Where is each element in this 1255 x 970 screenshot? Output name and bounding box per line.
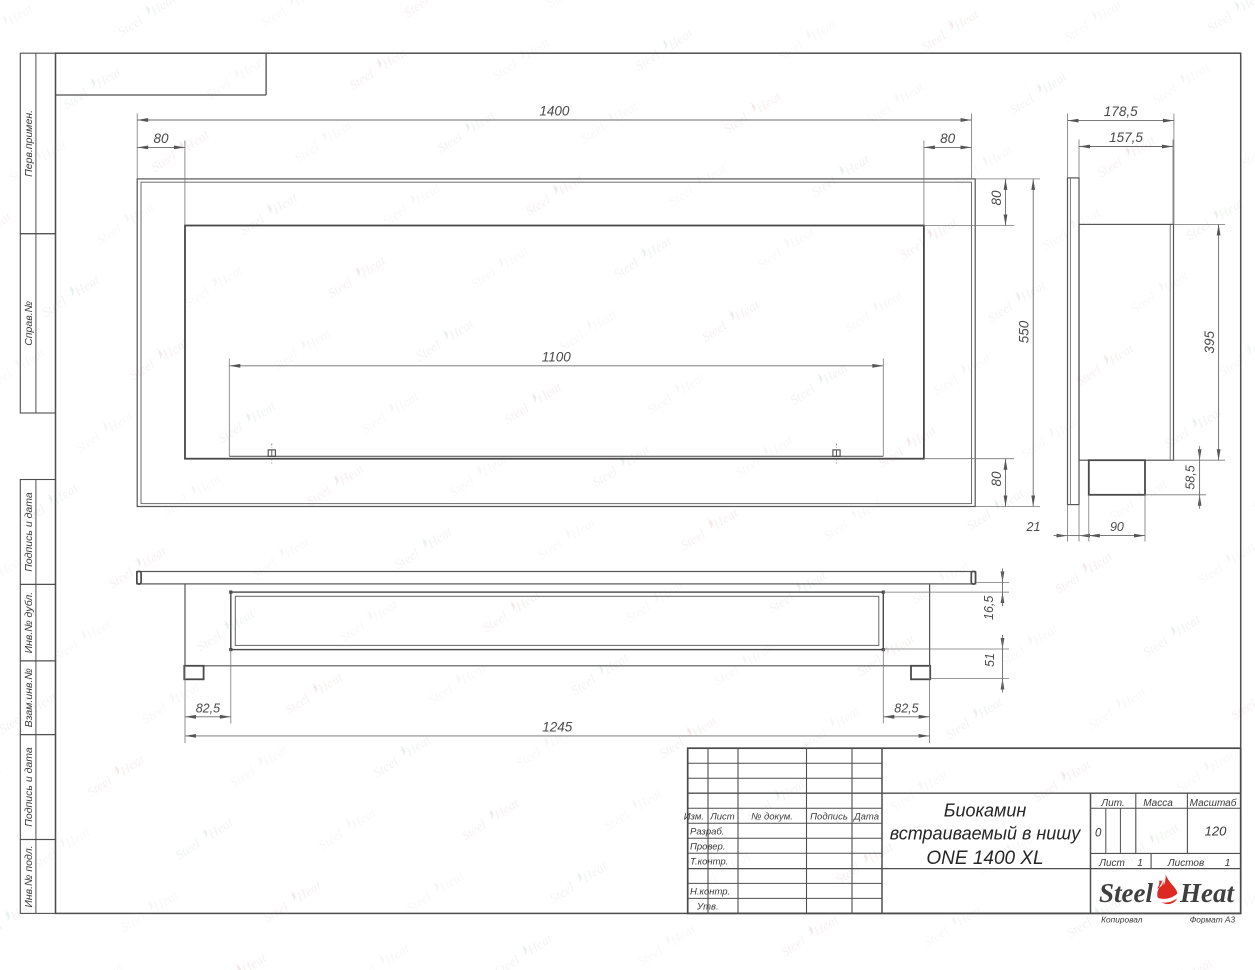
svg-text:395: 395 xyxy=(1202,331,1217,354)
svg-text:Heat: Heat xyxy=(810,911,842,939)
svg-text:Steel: Steel xyxy=(118,908,148,935)
svg-text:Heat: Heat xyxy=(776,775,808,803)
svg-text:Steel: Steel xyxy=(447,473,477,500)
svg-text:80: 80 xyxy=(989,190,1004,206)
svg-text:Heat: Heat xyxy=(1193,403,1225,431)
svg-text:Heat: Heat xyxy=(853,495,885,523)
svg-text:Heat: Heat xyxy=(290,0,322,9)
svg-text:Heat: Heat xyxy=(238,949,270,970)
svg-text:Подпись: Подпись xyxy=(810,812,848,823)
svg-text:51: 51 xyxy=(983,653,997,667)
svg-text:Heat: Heat xyxy=(874,286,906,314)
svg-text:Дата: Дата xyxy=(853,812,879,823)
svg-text:Steel: Steel xyxy=(635,942,665,969)
svg-text:Heat: Heat xyxy=(37,136,69,164)
svg-text:Heat: Heat xyxy=(390,388,422,416)
svg-text:Heat: Heat xyxy=(192,470,224,498)
svg-text:Heat: Heat xyxy=(621,441,653,469)
svg-text:Т.контр.: Т.контр. xyxy=(690,857,728,868)
svg-text:Steel: Steel xyxy=(346,66,376,93)
svg-text:Steel: Steel xyxy=(1174,768,1204,795)
svg-text:Heat: Heat xyxy=(490,795,522,823)
svg-text:Steel: Steel xyxy=(325,274,355,301)
svg-text:Steel: Steel xyxy=(1183,216,1213,243)
svg-text:Heat: Heat xyxy=(235,54,267,82)
svg-text:Steel: Steel xyxy=(888,788,918,815)
svg-text:Heat: Heat xyxy=(126,199,158,227)
svg-text:Steel: Steel xyxy=(227,763,257,790)
svg-text:Steel: Steel xyxy=(182,284,212,311)
svg-text:Steel: Steel xyxy=(1140,633,1170,660)
svg-text:Heat: Heat xyxy=(609,97,641,125)
svg-text:Steel: Steel xyxy=(1052,570,1082,597)
svg-text:0: 0 xyxy=(1095,828,1102,840)
svg-text:Heat: Heat xyxy=(984,141,1016,169)
svg-text:Heat: Heat xyxy=(1117,684,1149,712)
svg-text:178,5: 178,5 xyxy=(1104,104,1138,119)
svg-text:Steel: Steel xyxy=(985,299,1015,326)
svg-text:Heat: Heat xyxy=(1248,330,1255,358)
svg-text:Steel: Steel xyxy=(544,0,574,11)
svg-text:Steel: Steel xyxy=(632,47,662,74)
svg-text:Steel: Steel xyxy=(1204,8,1234,35)
svg-text:Heat: Heat xyxy=(1072,204,1104,232)
svg-text:Steel: Steel xyxy=(1216,352,1246,379)
svg-text:Heat: Heat xyxy=(150,886,182,914)
svg-text:157,5: 157,5 xyxy=(1109,130,1143,145)
svg-text:Steel: Steel xyxy=(1095,153,1125,180)
svg-text:Steel: Steel xyxy=(1195,560,1225,587)
svg-text:Heat: Heat xyxy=(159,334,191,362)
svg-text:Heat: Heat xyxy=(92,63,124,91)
svg-text:Heat: Heat xyxy=(974,693,1006,721)
svg-text:Steel: Steel xyxy=(349,962,379,970)
svg-text:Steel: Steel xyxy=(127,356,157,383)
svg-text:Heat: Heat xyxy=(49,480,81,508)
svg-text:Heat: Heat xyxy=(1038,69,1070,97)
svg-text:Heat: Heat xyxy=(1160,267,1192,295)
svg-text:Steel: Steel xyxy=(380,201,410,228)
svg-text:Steel: Steel xyxy=(459,816,489,843)
svg-text:Steel: Steel xyxy=(942,715,972,742)
svg-text:Steel: Steel xyxy=(404,889,434,916)
svg-text:Heat: Heat xyxy=(895,78,927,106)
svg-text:Steel: Steel xyxy=(84,773,114,800)
svg-text:Steel: Steel xyxy=(952,163,982,190)
svg-text:80: 80 xyxy=(154,131,170,146)
svg-text:Heat: Heat xyxy=(919,766,951,794)
svg-text:Steel: Steel xyxy=(918,27,948,54)
svg-text:Heat: Heat xyxy=(633,785,665,813)
svg-text:Heat: Heat xyxy=(214,262,246,290)
svg-text:Heat: Heat xyxy=(116,751,148,779)
svg-text:Heat: Heat xyxy=(138,543,170,571)
svg-text:Формат А3: Формат А3 xyxy=(1190,915,1236,925)
svg-text:Steel: Steel xyxy=(435,129,465,156)
svg-text:Heat: Heat xyxy=(357,252,389,280)
svg-text:Копировал: Копировал xyxy=(1101,915,1143,925)
svg-text:Heat: Heat xyxy=(667,921,699,949)
svg-text:Heat: Heat xyxy=(953,901,985,929)
svg-text:Steel: Steel xyxy=(611,255,641,282)
svg-text:Heat: Heat xyxy=(710,504,742,532)
svg-text:Steel: Steel xyxy=(1250,488,1255,515)
svg-text:Heat: Heat xyxy=(4,0,36,28)
svg-text:Steel: Steel xyxy=(997,642,1027,669)
svg-text:Steel: Steel xyxy=(1085,705,1115,732)
svg-text:Steel: Steel xyxy=(94,221,124,248)
svg-text:Heat: Heat xyxy=(786,223,818,251)
svg-text:Heat: Heat xyxy=(259,741,291,769)
svg-text:Heat: Heat xyxy=(478,451,510,479)
svg-text:Heat: Heat xyxy=(445,315,477,343)
svg-text:Steel: Steel xyxy=(413,337,443,364)
svg-text:Heat: Heat xyxy=(698,160,730,188)
svg-text:Steel: Steel xyxy=(1031,778,1061,805)
svg-text:Heat: Heat xyxy=(962,349,994,377)
svg-text:Steel: Steel xyxy=(1019,434,1049,461)
svg-text:16,5: 16,5 xyxy=(982,596,996,620)
svg-text:Steel: Steel xyxy=(513,744,543,771)
svg-text:Steel: Steel xyxy=(1061,18,1091,45)
svg-text:Steel: Steel xyxy=(282,690,312,717)
svg-text:Heat: Heat xyxy=(381,940,413,968)
svg-text:Heat: Heat xyxy=(512,586,544,614)
svg-text:1245: 1245 xyxy=(542,719,573,734)
svg-text:Лист: Лист xyxy=(1098,858,1125,869)
svg-text:Steel: Steel xyxy=(876,444,906,471)
svg-text:Heat: Heat xyxy=(1184,955,1216,970)
svg-text:Steel: Steel xyxy=(304,482,334,509)
svg-text:1: 1 xyxy=(1137,857,1143,869)
svg-text:Heat: Heat xyxy=(886,630,918,658)
svg-text:Heat: Heat xyxy=(1093,0,1125,24)
svg-text:Steel: Steel xyxy=(480,608,510,635)
svg-text:Heat: Heat xyxy=(293,877,325,905)
svg-text:Heat: Heat xyxy=(1050,412,1082,440)
svg-text:1: 1 xyxy=(1225,857,1231,869)
svg-text:Heat: Heat xyxy=(147,0,179,19)
svg-text:Steel: Steel xyxy=(1007,90,1037,117)
svg-text:Steel: Steel xyxy=(1150,81,1180,108)
svg-text:Steel: Steel xyxy=(194,627,224,654)
svg-text:Heat: Heat xyxy=(567,514,599,542)
svg-text:Steel: Steel xyxy=(237,211,267,238)
svg-text:Heat: Heat xyxy=(524,930,556,958)
svg-text:Heat: Heat xyxy=(1105,340,1137,368)
svg-text:встраиваемый в нишу: встраиваемый в нишу xyxy=(890,824,1081,844)
svg-text:Heat: Heat xyxy=(1205,747,1237,775)
svg-text:Heat: Heat xyxy=(269,189,301,217)
svg-text:Heat: Heat xyxy=(841,151,873,179)
svg-text:Подпись и дата: Подпись и дата xyxy=(23,492,35,572)
svg-text:Steel: Steel xyxy=(578,119,608,146)
svg-text:Steel: Steel xyxy=(623,599,653,626)
svg-text:Листов: Листов xyxy=(1167,858,1204,869)
svg-text:Steel: Steel xyxy=(401,0,431,20)
svg-text:Steel: Steel xyxy=(261,899,291,926)
svg-text:Steel: Steel xyxy=(809,173,839,200)
svg-text:Steel: Steel xyxy=(358,410,388,437)
svg-text:Heat: Heat xyxy=(0,208,15,236)
svg-text:Разраб.: Разраб. xyxy=(690,827,724,838)
svg-text:Heat: Heat xyxy=(731,296,763,324)
svg-text:Heat: Heat xyxy=(1215,195,1247,223)
svg-text:Heat: Heat xyxy=(314,669,346,697)
svg-text:Steel: Steel xyxy=(721,110,751,137)
svg-text:Steel: Steel xyxy=(215,419,245,446)
svg-text:Steel: Steel xyxy=(754,245,784,272)
svg-text:Heat: Heat xyxy=(1139,475,1171,503)
svg-text:Heat: Heat xyxy=(752,88,784,116)
svg-text:Утв.: Утв. xyxy=(696,902,719,913)
svg-text:Steel: Steel xyxy=(489,56,519,83)
svg-text:Heat: Heat xyxy=(533,378,565,406)
svg-text:Steel: Steel xyxy=(72,429,102,456)
svg-text:80: 80 xyxy=(989,471,1004,487)
svg-text:Heat: Heat xyxy=(204,814,236,842)
svg-text:1100: 1100 xyxy=(542,349,572,364)
svg-text:Heat: Heat xyxy=(95,959,127,970)
svg-text:Steel: Steel xyxy=(1228,696,1255,723)
svg-text:Heat: Heat xyxy=(1062,756,1094,784)
svg-text:Steel: Steel xyxy=(1040,226,1070,253)
svg-text:Steel: Steel xyxy=(316,826,346,853)
svg-text:Steel: Steel xyxy=(547,879,577,906)
svg-text:Steel: Steel xyxy=(292,138,322,165)
svg-text:90: 90 xyxy=(1110,520,1124,534)
svg-text:Heat: Heat xyxy=(71,271,103,299)
svg-text:Steel: Steel xyxy=(492,952,522,970)
svg-text:Steel: Steel xyxy=(842,308,872,335)
svg-text:Heat: Heat xyxy=(819,359,851,387)
svg-text:Heat: Heat xyxy=(588,306,620,334)
svg-text:82,5: 82,5 xyxy=(196,701,220,715)
svg-text:Steel: Steel xyxy=(392,545,422,572)
svg-text:Heat: Heat xyxy=(743,640,775,668)
svg-text:Heat: Heat xyxy=(0,760,5,788)
svg-text:Heat: Heat xyxy=(831,703,863,731)
svg-text:Steel: Steel xyxy=(568,671,598,698)
svg-text:Heat: Heat xyxy=(323,117,355,145)
svg-text:Steel: Steel xyxy=(173,836,203,863)
svg-text:Steel: Steel xyxy=(523,192,553,219)
svg-text:Steel: Steel xyxy=(775,37,805,64)
svg-text:Heat: Heat xyxy=(500,243,532,271)
svg-text:Heat: Heat xyxy=(555,170,587,198)
svg-text:Инв.№ подл.: Инв.№ подл. xyxy=(23,845,35,907)
svg-text:Heat: Heat xyxy=(807,15,839,43)
svg-text:Steel: Steel xyxy=(733,453,763,480)
svg-text:Steel: Steel xyxy=(1073,362,1103,389)
svg-text:Steel: Steel xyxy=(821,516,851,543)
svg-text:Steel: Steel xyxy=(0,22,3,49)
svg-text:Провер.: Провер. xyxy=(690,842,725,853)
svg-text:Heat: Heat xyxy=(950,6,982,34)
svg-text:Steel: Steel xyxy=(203,75,233,102)
svg-text:Heat: Heat xyxy=(335,460,367,488)
svg-text:Steel: Steel xyxy=(666,182,696,209)
svg-text:Steel: Steel xyxy=(425,681,455,708)
svg-text:Heat: Heat xyxy=(1029,621,1061,649)
svg-text:Steel: Steel xyxy=(864,100,894,127)
svg-text:Steel: Steel xyxy=(699,318,729,345)
svg-text:Steel: Steel xyxy=(249,555,279,582)
svg-text:Steel: Steel xyxy=(106,564,136,591)
svg-text:Heat: Heat xyxy=(247,397,279,425)
svg-text:120: 120 xyxy=(1205,824,1227,839)
svg-text:Steel: Steel xyxy=(0,366,15,393)
svg-text:Heat: Heat xyxy=(1181,59,1213,87)
svg-text:80: 80 xyxy=(940,131,956,146)
svg-text:550: 550 xyxy=(1017,320,1032,343)
svg-text:Heat: Heat xyxy=(764,432,796,460)
svg-text:Steel: Steel xyxy=(602,807,632,834)
svg-text:Steel: Steel xyxy=(60,85,90,112)
svg-text:Лит.: Лит. xyxy=(1100,798,1124,809)
svg-text:Steel: Steel xyxy=(468,264,498,291)
svg-text:Перв.примен.: Перв.примен. xyxy=(23,110,35,177)
svg-text:Steel: Steel xyxy=(258,3,288,30)
svg-text:Steel: Steel xyxy=(1064,914,1094,941)
svg-text:Лист: Лист xyxy=(709,812,735,823)
svg-text:Steel: Steel xyxy=(678,526,708,553)
svg-text:Heat: Heat xyxy=(83,615,115,643)
svg-text:Heat: Heat xyxy=(281,533,313,561)
svg-text:Heat: Heat xyxy=(302,325,334,353)
svg-text:Heat: Heat xyxy=(457,659,489,687)
svg-text:Heat: Heat xyxy=(369,596,401,624)
svg-text:Steel: Steel xyxy=(149,148,179,175)
svg-text:Heat: Heat xyxy=(1179,878,1235,908)
svg-text:Steel: Steel xyxy=(139,700,169,727)
svg-text:Heat: Heat xyxy=(655,577,687,605)
svg-text:Steel: Steel xyxy=(897,236,927,263)
svg-text:Steel: Steel xyxy=(535,536,565,563)
svg-text:Heat: Heat xyxy=(521,34,553,62)
svg-text:82,5: 82,5 xyxy=(894,701,918,715)
svg-text:Биокамин: Биокамин xyxy=(944,801,1027,821)
svg-text:58,5: 58,5 xyxy=(1184,465,1198,489)
svg-text:Heat: Heat xyxy=(996,485,1028,513)
svg-text:21: 21 xyxy=(1026,520,1041,534)
svg-text:Heat: Heat xyxy=(347,804,379,832)
svg-text:Heat: Heat xyxy=(466,107,498,135)
svg-text:Steel: Steel xyxy=(0,918,5,945)
svg-text:Heat: Heat xyxy=(1172,611,1204,639)
svg-text:Steel: Steel xyxy=(501,400,531,427)
svg-text:Steel: Steel xyxy=(161,492,191,519)
svg-text:Подпись и дата: Подпись и дата xyxy=(23,747,35,827)
svg-text:Heat: Heat xyxy=(1151,819,1183,847)
svg-text:Heat: Heat xyxy=(424,523,456,551)
svg-text:№ докум.: № докум. xyxy=(751,812,793,823)
svg-text:Steel: Steel xyxy=(115,12,145,39)
svg-text:ONE 1400 XL: ONE 1400 XL xyxy=(926,848,1043,869)
svg-text:Heat: Heat xyxy=(643,233,675,261)
svg-text:Heat: Heat xyxy=(664,25,696,53)
svg-text:Steel: Steel xyxy=(270,347,300,374)
svg-text:Steel: Steel xyxy=(337,618,367,645)
svg-text:Инв.№ дубл.: Инв.№ дубл. xyxy=(23,592,35,654)
svg-text:Справ.№: Справ.№ xyxy=(23,301,35,346)
svg-text:Steel: Steel xyxy=(656,734,686,761)
svg-text:Масштаб: Масштаб xyxy=(1190,797,1237,809)
svg-text:Изм.: Изм. xyxy=(684,812,704,823)
svg-text:Н.контр.: Н.контр. xyxy=(690,887,730,898)
svg-text:Heat: Heat xyxy=(436,867,468,895)
svg-text:Heat: Heat xyxy=(1084,548,1116,576)
svg-text:Steel: Steel xyxy=(1099,878,1153,908)
svg-text:Heat: Heat xyxy=(676,369,708,397)
svg-text:Heat: Heat xyxy=(104,407,136,435)
svg-text:Steel: Steel xyxy=(778,933,808,960)
svg-text:Heat: Heat xyxy=(61,823,93,851)
svg-text:Heat: Heat xyxy=(929,214,961,242)
svg-text:1400: 1400 xyxy=(539,104,570,119)
svg-text:Steel: Steel xyxy=(787,381,817,408)
svg-text:Heat: Heat xyxy=(600,649,632,677)
svg-text:Steel: Steel xyxy=(39,293,69,320)
svg-text:Steel: Steel xyxy=(1162,425,1192,452)
svg-text:Steel: Steel xyxy=(370,753,400,780)
svg-text:Heat: Heat xyxy=(378,44,410,72)
svg-text:Steel: Steel xyxy=(921,923,951,950)
svg-text:Steel: Steel xyxy=(644,390,674,417)
svg-text:Steel: Steel xyxy=(1128,289,1158,316)
svg-text:Steel: Steel xyxy=(766,589,796,616)
svg-text:Heat: Heat xyxy=(579,858,611,886)
svg-text:Steel: Steel xyxy=(964,507,994,534)
svg-text:Steel: Steel xyxy=(590,463,620,490)
svg-text:Steel: Steel xyxy=(930,371,960,398)
svg-text:Масса: Масса xyxy=(1143,798,1173,809)
svg-text:Взам.инв.№: Взам.инв.№ xyxy=(23,668,35,727)
svg-text:Heat: Heat xyxy=(412,180,444,208)
